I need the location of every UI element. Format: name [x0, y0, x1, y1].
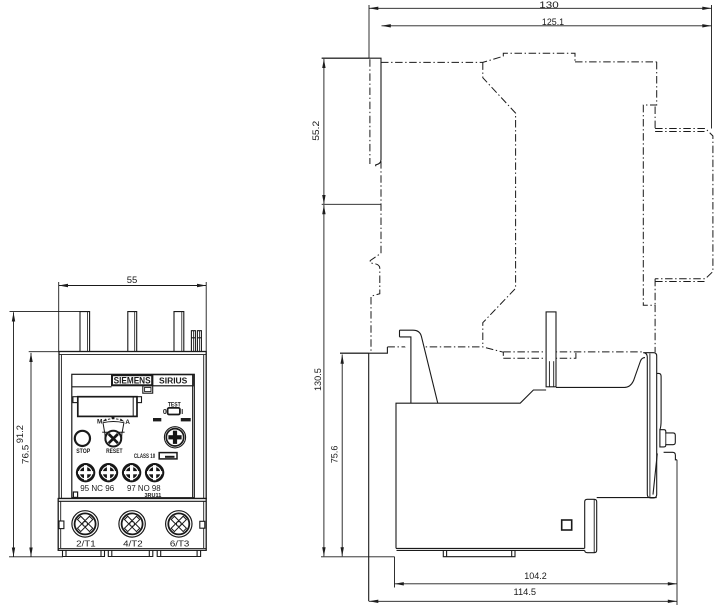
svg-text:75.6: 75.6	[330, 446, 341, 464]
svg-text:RESET: RESET	[106, 448, 122, 455]
svg-text:76.5: 76.5	[21, 445, 32, 464]
svg-text:104.2: 104.2	[524, 571, 547, 582]
svg-text:M: M	[97, 419, 102, 426]
svg-text:A: A	[125, 419, 130, 426]
svg-text:55: 55	[127, 275, 138, 286]
svg-text:114.5: 114.5	[514, 587, 537, 598]
svg-text:4/T2: 4/T2	[123, 538, 143, 548]
svg-text:55.2: 55.2	[311, 121, 322, 141]
svg-text:6/T3: 6/T3	[170, 538, 190, 548]
svg-text:97 NO 98: 97 NO 98	[127, 483, 161, 493]
svg-text:130.5: 130.5	[313, 368, 324, 391]
svg-text:130: 130	[539, 0, 558, 11]
svg-text:SIEMENS: SIEMENS	[114, 375, 151, 385]
svg-text:0: 0	[163, 409, 167, 416]
svg-text:STOP: STOP	[76, 448, 91, 455]
svg-text:CLASS 10: CLASS 10	[134, 453, 156, 460]
svg-text:91.2: 91.2	[15, 425, 26, 443]
svg-text:3RU11: 3RU11	[144, 493, 161, 499]
svg-text:SIRIUS: SIRIUS	[159, 377, 188, 386]
svg-text:125.1: 125.1	[542, 17, 564, 28]
svg-text:2/T1: 2/T1	[76, 538, 96, 548]
svg-text:95 NC 96: 95 NC 96	[80, 483, 114, 493]
svg-text:I: I	[181, 409, 183, 416]
